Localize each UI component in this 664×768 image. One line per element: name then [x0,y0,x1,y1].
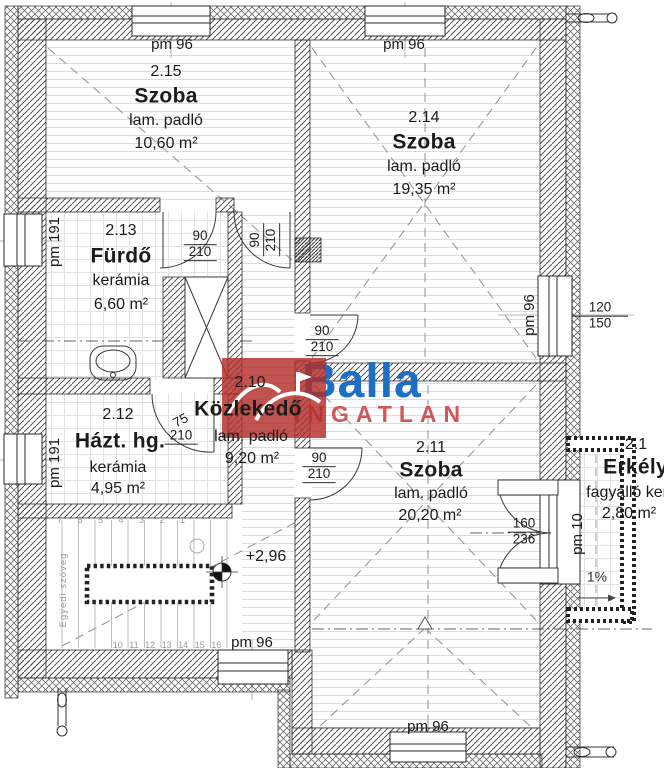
room-214-number: 2.14 [408,109,439,127]
room-210-floor: lam. padló [214,428,288,446]
room-214-area: 19,35 m² [392,181,455,199]
parapet-label: pm 10 [570,513,587,555]
room-212-name: Házt. hg. [75,429,165,452]
stair-step-numbers-bottom: 10 11 12 13 14 15 16 [113,641,221,651]
room-212-number: 2.12 [102,406,133,424]
slope-label: 1% [587,569,607,584]
room-214-name: Szoba [392,130,455,153]
door-dim-room211: 90 210 [303,451,336,483]
room-215-area: 10,60 m² [134,135,197,153]
label-layer: 2.15 Szoba lam. padló 10,60 m² 2.14 Szob… [0,0,664,768]
balcony-number: 2.1 [625,436,647,454]
room-215-name: Szoba [134,84,197,107]
floorplan: Balla INGATLAN 2.15 Szoba lam. padló 10,… [0,0,664,768]
room-211-number: 2.11 [416,439,446,457]
parapet-label: pm 96 [231,635,273,652]
balcony-floor: fagyálló ker [586,484,664,502]
room-215-number: 2.15 [150,63,181,81]
door-dim-utility: 75 210 [165,414,198,445]
parapet-label: pm 96 [383,37,425,54]
balcony-area: 2,80 m² [602,505,656,523]
parapet-label: pm 96 [151,37,193,54]
room-211-name: Szoba [399,458,462,481]
door-dim-corridor: 90 210 [248,224,280,257]
room-213-floor: kerámia [93,272,150,290]
parapet-label: pm 191 [47,438,64,488]
room-211-floor: lam. padló [394,485,468,503]
room-215-floor: lam. padló [129,112,203,130]
room-213-name: Fürdő [91,244,152,267]
custom-text-note: Egyedi szöveg [59,553,69,628]
balcony-name: Erkély [603,455,664,478]
stair-step-numbers-top: 7 6 5 4 3 2 1 [57,516,187,526]
room-212-area: 4,95 m² [91,480,145,498]
room-211-area: 20,20 m² [398,507,461,525]
parapet-label: pm 96 [407,719,449,736]
room-210-number: 2.10 [234,374,265,392]
parapet-label: pm 96 [522,294,539,336]
door-dim-bathroom: 90 210 [184,229,217,261]
door-dim-balcony: 160 236 [508,517,541,548]
room-213-number: 2.13 [105,222,136,240]
room-213-area: 6,60 m² [94,296,148,314]
room-210-area: 9,20 m² [225,450,279,468]
parapet-label: pm 191 [47,217,64,267]
level-label: +2,96 [246,548,286,566]
room-210-name: Közlekedő [194,397,302,420]
room-212-floor: kerámia [90,459,147,477]
door-dim-room214: 90 210 [306,324,339,356]
room-214-floor: lam. padló [387,158,461,176]
window-dim-right: 120 150 [572,301,628,332]
